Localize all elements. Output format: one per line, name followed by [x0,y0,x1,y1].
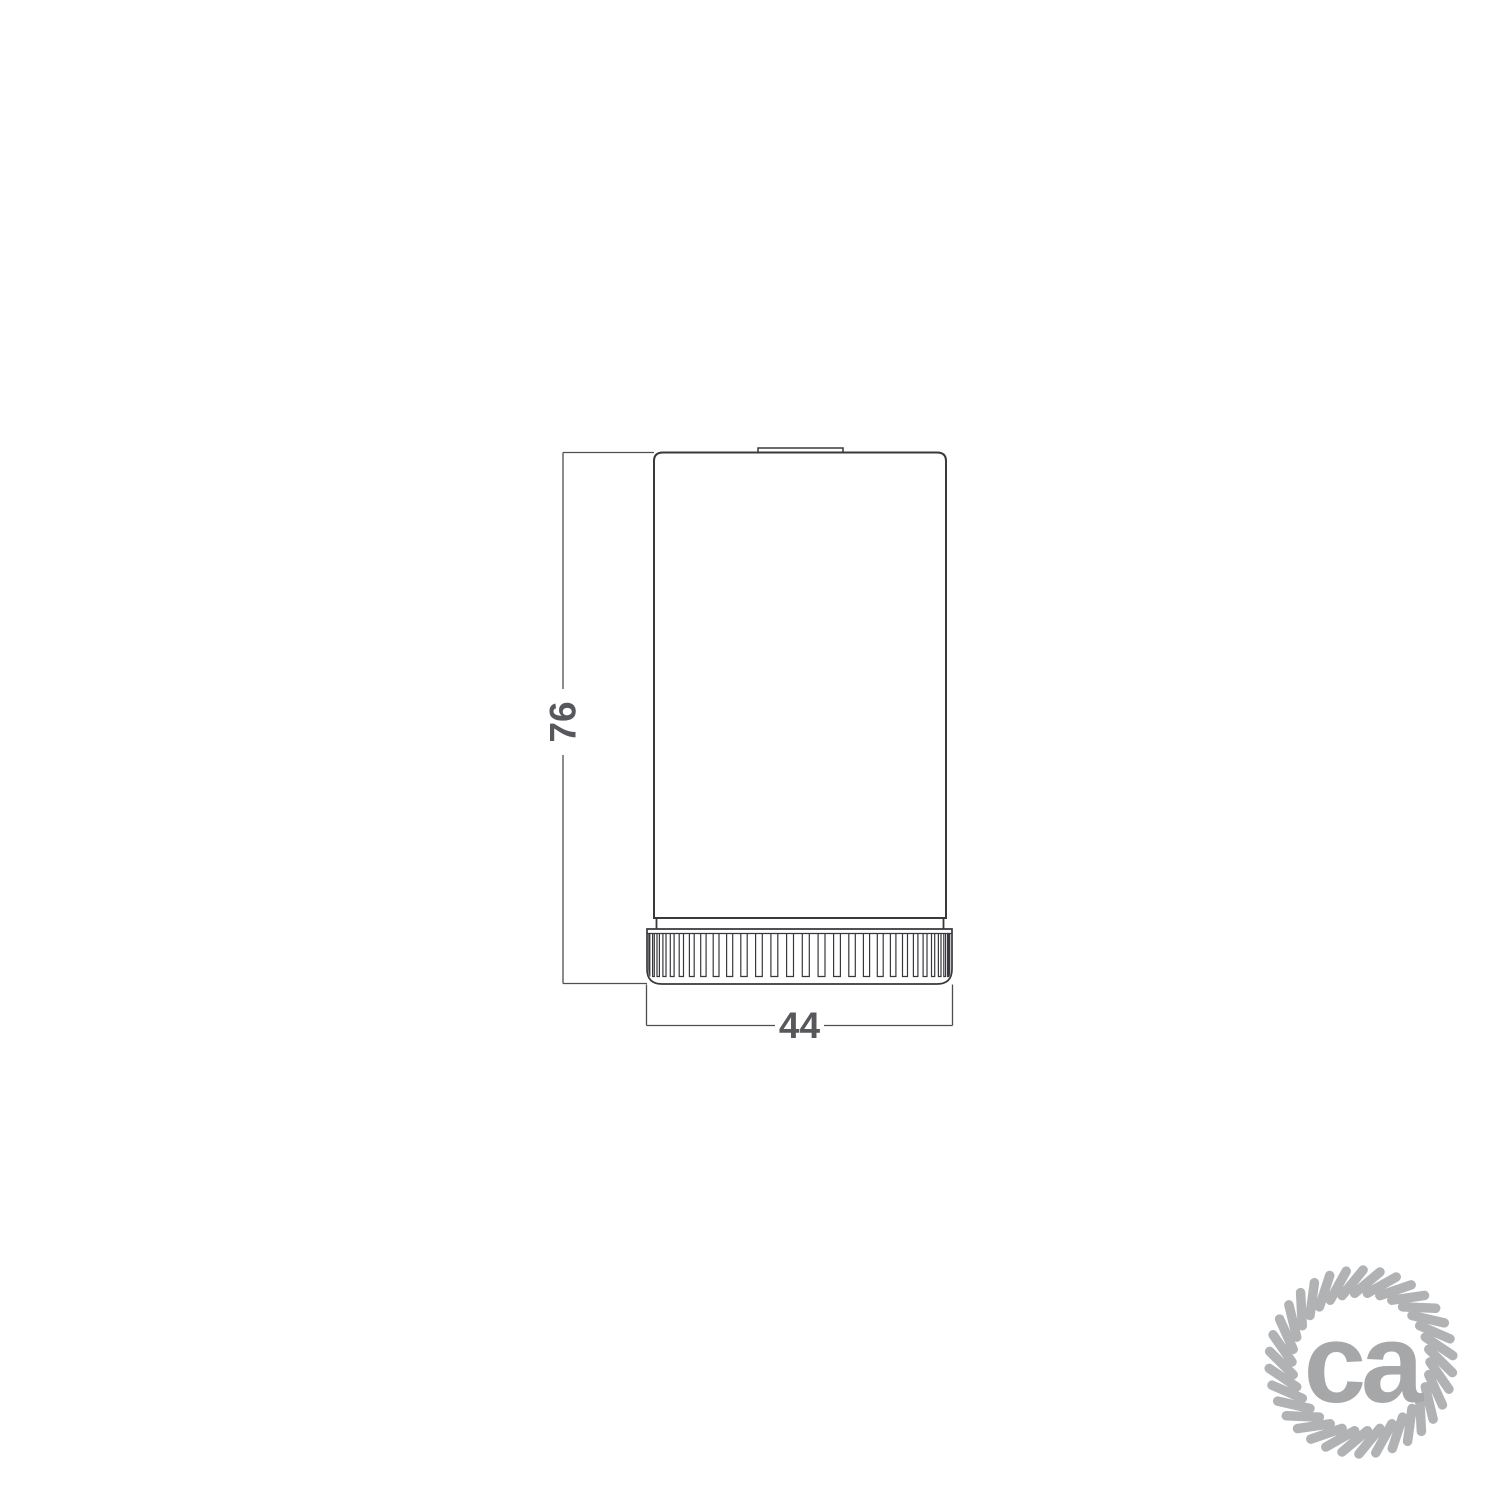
width-dimension-label: 44 [779,1005,821,1046]
brand-logo: ca [1269,1270,1453,1454]
height-dimension-label: 76 [543,701,584,742]
product-technical-drawing: 76 44 ca [0,0,1500,1500]
knurled-ring-outline [647,929,952,984]
cylinder-body [654,453,946,919]
height-dimension: 76 [543,453,655,984]
width-dimension: 44 [647,985,953,1047]
lamp-holder-outline [647,448,952,984]
brand-logo-text: ca [1304,1301,1424,1426]
knurl-ribs [649,934,950,977]
dimension-drawing-svg: 76 44 ca [0,0,1500,1500]
